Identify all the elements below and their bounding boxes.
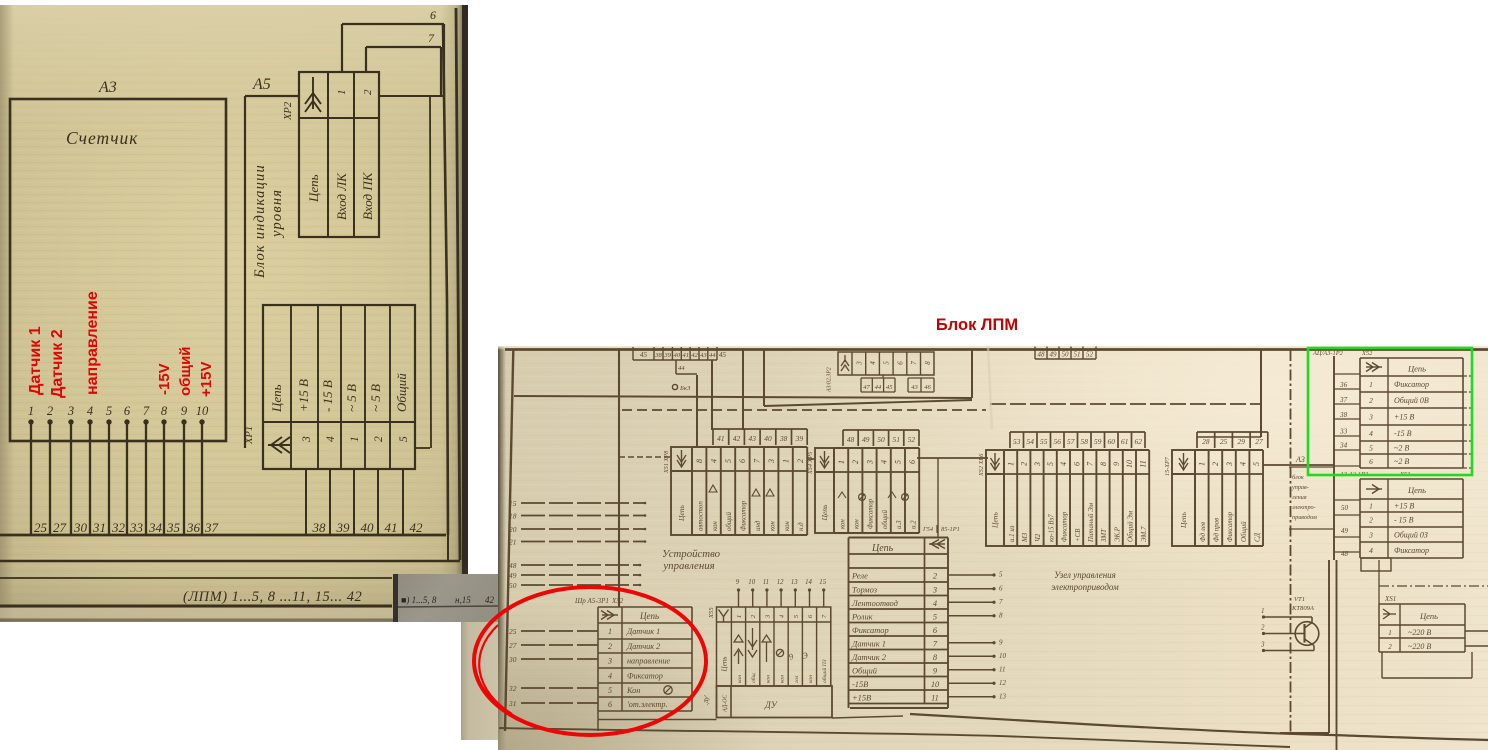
svg-text:общий: общий — [177, 346, 194, 396]
svg-text:направление: направление — [84, 291, 101, 395]
svg-text:-15V: -15V — [156, 363, 173, 395]
svg-text:Блок ЛПМ: Блок ЛПМ — [936, 316, 1018, 334]
svg-text:Датчик 2: Датчик 2 — [49, 329, 66, 398]
svg-text:Датчик 1: Датчик 1 — [27, 326, 44, 395]
svg-text:+15V: +15V — [198, 362, 215, 397]
